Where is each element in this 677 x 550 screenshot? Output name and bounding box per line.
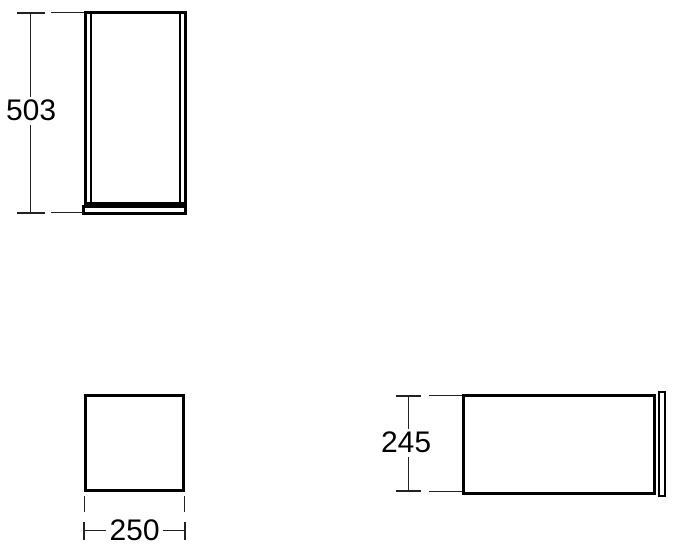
front-view-bottom-plinth — [82, 205, 187, 215]
side-view-door-panel — [658, 391, 666, 497]
depth-extension-line-bottom — [429, 491, 462, 492]
width-extension-line-right — [184, 496, 185, 512]
depth-dimension-tick-top — [396, 395, 421, 397]
height-extension-line-bottom — [51, 212, 84, 213]
height-dimension-label: 503 — [6, 97, 56, 125]
width-dimension-label: 250 — [106, 517, 163, 545]
front-view-outline — [84, 11, 187, 205]
depth-extension-line-top — [429, 395, 462, 396]
technical-drawing: 503 250 245 — [0, 0, 677, 550]
width-dimension-tick-left — [83, 522, 85, 540]
width-extension-line-left — [84, 496, 85, 512]
height-dimension-tick-top — [17, 12, 45, 14]
width-dimension-tick-right — [184, 522, 186, 540]
front-view-right-panel-line — [179, 11, 181, 202]
front-view-left-panel-line — [90, 11, 92, 202]
plan-view-outline — [84, 394, 185, 492]
height-extension-line-top — [51, 12, 84, 13]
side-view-outline — [462, 394, 656, 495]
height-dimension-tick-bottom — [17, 212, 45, 214]
depth-dimension-label: 245 — [381, 429, 431, 457]
depth-dimension-tick-bottom — [396, 490, 421, 492]
